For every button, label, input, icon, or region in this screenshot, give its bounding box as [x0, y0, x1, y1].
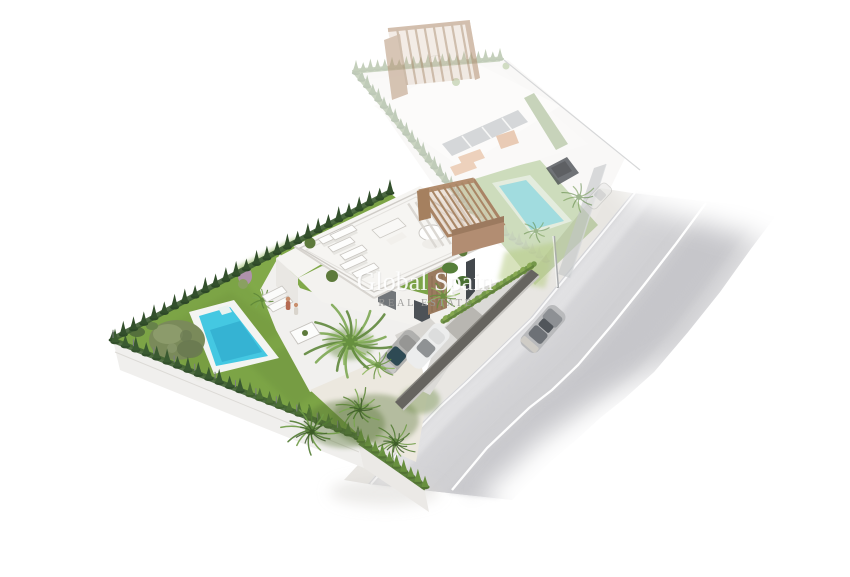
svg-text:Global Spain: Global Spain	[357, 267, 494, 296]
svg-text:REAL ESTATE: REAL ESTATE	[378, 298, 473, 309]
